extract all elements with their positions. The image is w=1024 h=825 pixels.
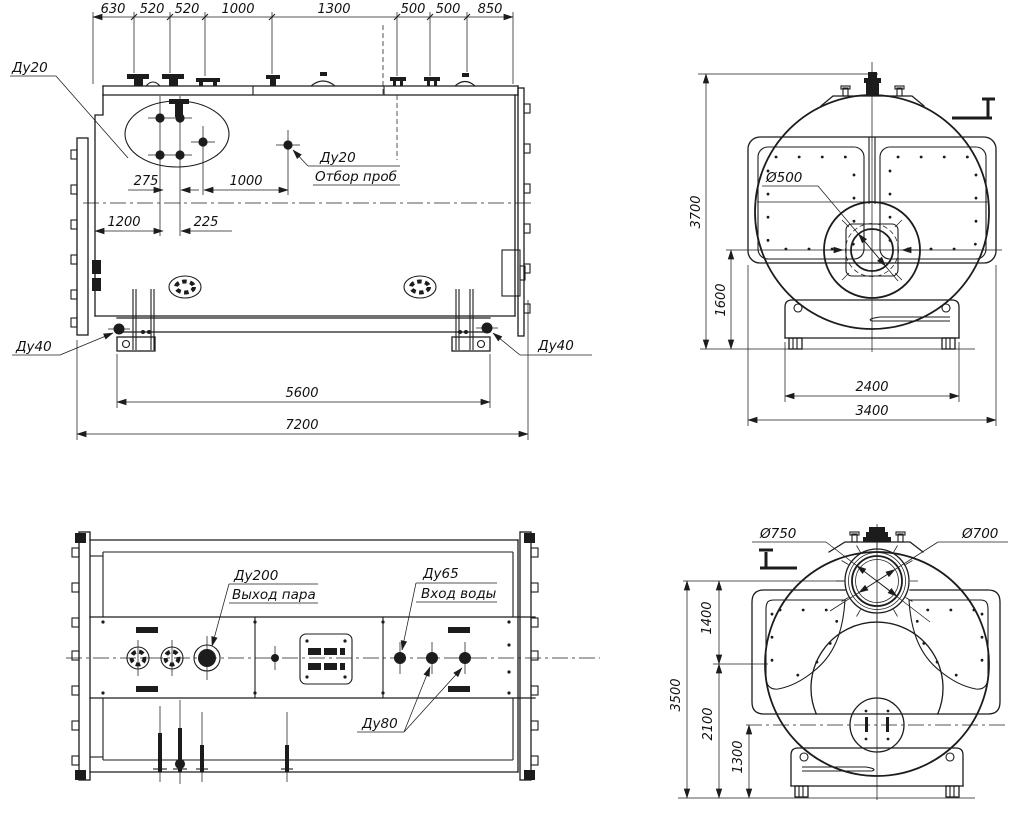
svg-text:Ø500: Ø500 xyxy=(765,170,802,186)
boiler-drawing: 630 520 520 1000 1300 500 500 850 xyxy=(0,0,1024,825)
svg-text:3500: 3500 xyxy=(669,678,684,711)
rear-panel-side xyxy=(502,250,520,296)
du80-callout: Ду80 xyxy=(357,667,462,732)
sample-name-label: Отбор проб xyxy=(315,169,397,185)
top-nozzles xyxy=(127,72,475,86)
du40-left-label: Ду40 xyxy=(15,339,52,355)
dim-3500: 3500 xyxy=(669,581,687,798)
svg-text:2400: 2400 xyxy=(855,380,888,395)
pipe-bracket-left xyxy=(759,550,797,568)
dim-630: 630 xyxy=(101,2,126,17)
svg-text:2100: 2100 xyxy=(701,707,716,740)
svg-text:3400: 3400 xyxy=(855,404,888,419)
du20-label: Ду20 xyxy=(11,60,48,76)
dim-7200: 7200 xyxy=(77,300,528,440)
dim-520a: 520 xyxy=(140,2,165,17)
svg-text:5600: 5600 xyxy=(285,386,318,401)
water-inlet-callout: Ду65 Вход воды xyxy=(402,566,497,650)
dim-1600: 1600 xyxy=(714,250,731,349)
front-view: Ø500 3700 1600 xyxy=(689,62,1002,426)
svg-text:7200: 7200 xyxy=(285,418,318,433)
dim-5600: 5600 xyxy=(117,354,490,408)
front-panel-right xyxy=(880,147,986,259)
dim-1400: 1400 xyxy=(700,581,719,664)
svg-text:3700: 3700 xyxy=(689,195,704,228)
rear-view: Ø750 Ø700 xyxy=(669,524,1008,800)
drain-left-callout: Ду40 xyxy=(12,324,130,356)
side-skid xyxy=(117,289,490,351)
svg-text:1600: 1600 xyxy=(714,283,729,316)
safety-valve xyxy=(864,72,881,96)
dim-275-1000: 275 1000 xyxy=(128,174,288,190)
plan-view: Ду200 Выход пара Ду65 Вход воды Ду80 xyxy=(66,532,600,784)
du40-right-label: Ду40 xyxy=(537,338,574,354)
dim-2100: 2100 xyxy=(701,664,719,798)
handhole-right xyxy=(404,276,436,298)
dim-1200: 1200 xyxy=(107,215,140,230)
svg-text:Ду80: Ду80 xyxy=(361,716,398,732)
rear-saddle xyxy=(678,748,975,798)
handhole-left xyxy=(169,276,201,298)
svg-text:Ø700: Ø700 xyxy=(961,526,998,542)
svg-text:Ø750: Ø750 xyxy=(759,526,796,542)
dim-225: 225 xyxy=(194,215,219,230)
dim-850: 850 xyxy=(478,2,503,17)
sample-size-label: Ду20 xyxy=(319,150,356,166)
dim-500b: 500 xyxy=(436,2,461,17)
side-top-dimension-chain: 630 520 520 1000 1300 500 500 850 xyxy=(93,2,513,84)
dim-520b: 520 xyxy=(175,2,200,17)
svg-text:Вход воды: Вход воды xyxy=(421,586,497,602)
steam-outlet-callout: Ду200 Выход пара xyxy=(212,568,318,646)
pipe-bracket-right xyxy=(952,99,995,118)
svg-text:Ду65: Ду65 xyxy=(422,566,459,582)
drain-right-callout: Ду40 xyxy=(476,323,592,356)
dim-1000: 1000 xyxy=(229,174,262,189)
plan-fittings xyxy=(127,627,471,692)
sample-nozzle-callout: Ду20 Отбор проб xyxy=(276,130,400,195)
svg-text:1400: 1400 xyxy=(700,601,715,634)
dim-1000-top: 1000 xyxy=(221,2,254,17)
drawing-sheet: 630 520 520 1000 1300 500 500 850 xyxy=(0,0,1024,825)
svg-text:1300: 1300 xyxy=(731,740,746,773)
water-inlet-nozzle xyxy=(394,652,406,664)
svg-text:Ду200: Ду200 xyxy=(233,568,278,584)
side-view: 630 520 520 1000 1300 500 500 850 xyxy=(10,2,592,440)
dim-500a: 500 xyxy=(401,2,426,17)
dim-1300: 1300 xyxy=(731,725,749,798)
svg-text:Выход пара: Выход пара xyxy=(232,587,316,603)
front-panel-left xyxy=(758,147,864,259)
dim-1200-225: 1200 225 xyxy=(95,215,232,231)
dim-275: 275 xyxy=(134,174,159,189)
dim-1300: 1300 xyxy=(317,2,350,17)
